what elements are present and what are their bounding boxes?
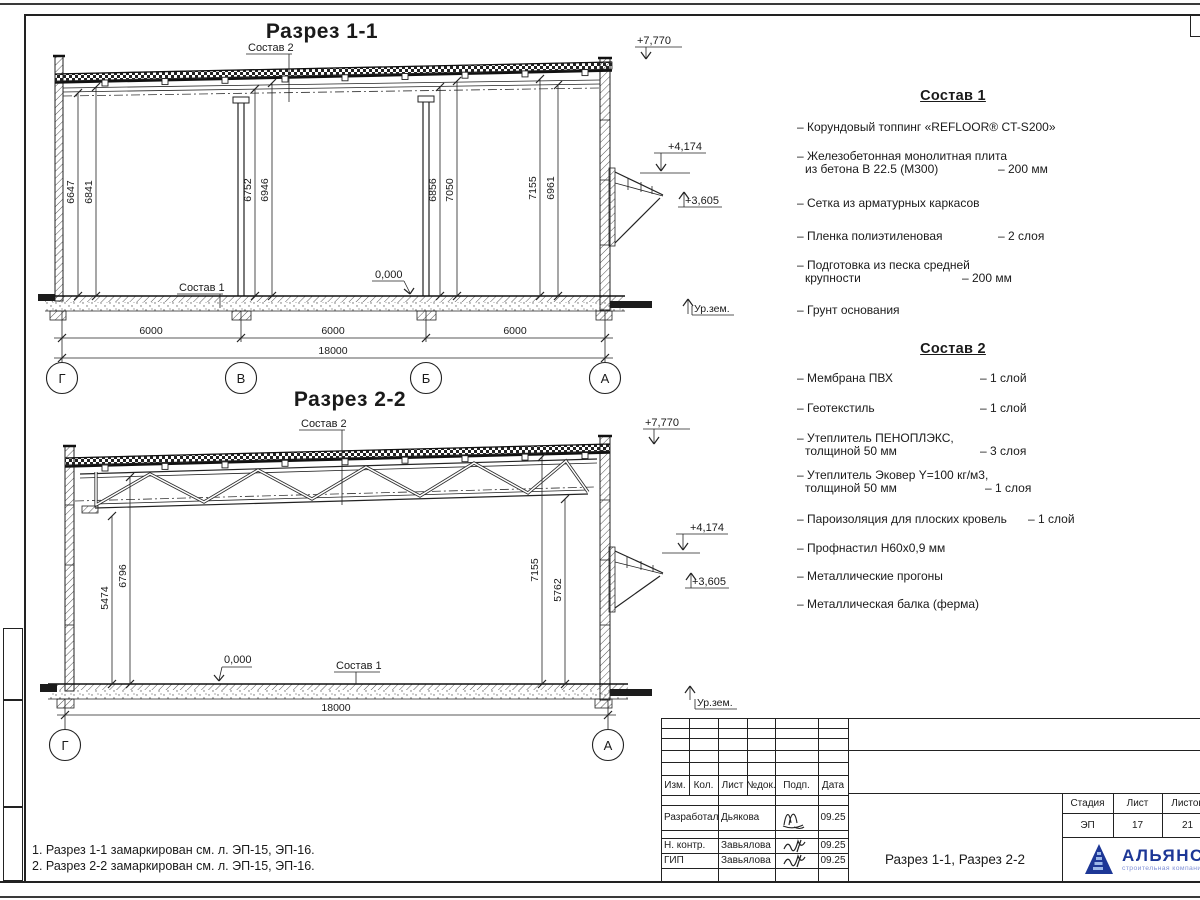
sostav1-item-value: – 2 слоя: [998, 229, 1044, 243]
tb-date-gip: 09.25: [818, 853, 848, 868]
total-dim: 18000: [318, 345, 347, 357]
tb-stage-value: ЭП: [1062, 813, 1113, 837]
elev-4174: +4,174: [668, 141, 702, 153]
sostav1-item: – Грунт основания: [797, 303, 900, 317]
dim-6856: 6856: [427, 178, 439, 202]
sostav2-item-value: – 1 слой: [980, 401, 1027, 415]
sostav2-item-value: – 3 слоя: [980, 444, 1026, 458]
ground-level-label: Ур.зем.: [697, 697, 733, 709]
section2-vertical-dims: 5474 6796 7155 5762: [99, 453, 569, 688]
title-block: Изм. Кол. Лист №док. Подп. Дата Разработ…: [661, 718, 1200, 882]
left-console: [40, 684, 57, 692]
dim-5474: 5474: [99, 586, 111, 610]
tb-name-gip: Завьялова: [718, 853, 775, 868]
section1-composition-leaders: Состав 2 Состав 1: [177, 42, 294, 308]
axis-v: В: [237, 371, 246, 386]
sostav1-heading: Состав 1: [795, 88, 1111, 104]
tb-sheet-label: Лист: [1113, 793, 1162, 813]
sostav1-ref-label: Состав 1: [336, 660, 382, 672]
section2-truss: [75, 459, 597, 513]
section2-bottom-dims: 18000 Г А: [50, 699, 624, 761]
section-1-1-drawing: Разрез 1-1: [35, 12, 735, 398]
tb-col-data: Дата: [818, 775, 848, 795]
elev-3605: +3,605: [692, 576, 726, 588]
tb-col-kol: Кол.: [689, 775, 718, 795]
section2-title: Разрез 2-2: [294, 388, 406, 411]
sheet-bottom-edge: [0, 896, 1200, 898]
tb-doc-title: Разрез 1-1, Разрез 2-2: [848, 838, 1062, 881]
left-stamp-box-2: [3, 700, 23, 807]
right-console: [610, 301, 652, 308]
tb-date-ncontrol: 09.25: [818, 838, 848, 853]
sostav2-item-value: – 1 слоя: [985, 481, 1031, 495]
dim-5762: 5762: [552, 578, 564, 602]
dim-6961: 6961: [545, 176, 557, 200]
elev-zero: 0,000: [224, 654, 252, 666]
span-dim-2: 6000: [321, 325, 345, 337]
sostav2-item: – Геотекстиль: [797, 401, 875, 415]
sostav2-heading: Состав 2: [795, 341, 1111, 357]
dim-6647: 6647: [65, 180, 77, 204]
section-2-2-drawing: Разрез 2-2: [30, 388, 740, 774]
sostav2-item: – Утеплитель ПЕНОПЛЭКС,: [797, 431, 954, 445]
sostav1-item: – Корундовый топпинг «REFLOOR® CT-S200»: [797, 120, 1056, 134]
tb-col-ndok: №док.: [747, 775, 775, 795]
tb-signature-gip: [775, 853, 818, 868]
sostav2-item: – Профнастил Н60х0,9 мм: [797, 541, 945, 555]
note-2: 2. Разрез 2-2 замаркирован см. л. ЭП-15,…: [32, 859, 315, 875]
span-dim-3: 6000: [503, 325, 527, 337]
elev-4174: +4,174: [690, 522, 724, 534]
composition-lists: Состав 1 – Корундовый топпинг «REFLOOR® …: [795, 0, 1200, 700]
axis-a: А: [601, 371, 610, 386]
sostav2-item: – Мембрана ПВХ: [797, 371, 893, 385]
tb-signature-ncontrol: [775, 838, 818, 853]
section1-floor: [38, 294, 652, 320]
tb-sheets-label: Листов: [1162, 793, 1200, 813]
section1-vertical-dims: 6647 6841 6752 6946 6856 7050 7155 6961: [65, 75, 562, 300]
tb-signature-developer: [775, 805, 818, 830]
sostav1-ref-label: Состав 1: [179, 282, 225, 294]
sostav2-item-cont: толщиной 50 мм: [805, 444, 897, 458]
sostav1-item-value: – 200 мм: [962, 271, 1012, 285]
tb-name-ncontrol: Завьялова: [718, 838, 775, 853]
tb-date-developer: 09.25: [818, 805, 848, 830]
left-stamp-box-3: [3, 807, 23, 881]
right-console: [610, 689, 652, 696]
tb-role-ncontrol: Н. контр.: [661, 838, 718, 853]
signature-icon: [781, 854, 813, 868]
tb-sheets-value: 21: [1162, 813, 1200, 837]
sostav2-item-value: – 1 слой: [980, 371, 1027, 385]
sostav1-item: – Подготовка из песка средней: [797, 258, 970, 272]
axis-a: А: [604, 738, 613, 753]
sostav2-item: – Металлические прогоны: [797, 569, 943, 583]
truss-support: [82, 506, 98, 513]
dim-6752: 6752: [242, 178, 254, 202]
dim-7155: 7155: [529, 558, 541, 582]
left-console: [38, 294, 55, 301]
section2-canopy: [609, 547, 663, 612]
tb-col-list: Лист: [718, 775, 747, 795]
sostav1-item: – Железобетонная монолитная плита: [797, 149, 1007, 163]
tb-stage-label: Стадия: [1062, 793, 1113, 813]
dim-6841: 6841: [83, 180, 95, 204]
sostav2-item: – Утеплитель Эковер Y=100 кг/м3,: [797, 468, 988, 482]
tb-col-podp: Подп.: [775, 775, 818, 795]
elev-7770: +7,770: [645, 417, 679, 429]
sostav1-item-cont: из бетона В 22.5 (М300): [805, 162, 938, 176]
tb-role-gip: ГИП: [661, 853, 718, 868]
section1-elevations: +7,770 +4,174 +3,605 0,000 Ур.зем.: [372, 35, 734, 315]
tb-logo-cell: АЛЬЯНС строительная компания: [1062, 837, 1200, 881]
drawing-sheet: { "notes": { "line1": "1. Разрез 1-1 зам…: [0, 0, 1200, 900]
note-1: 1. Разрез 1-1 замаркирован см. л. ЭП-15,…: [32, 843, 315, 859]
tb-col-izm: Изм.: [661, 775, 689, 795]
frame-left-border: [24, 14, 26, 882]
axis-g: Г: [58, 371, 65, 386]
tb-role-developer: Разработал: [661, 805, 718, 830]
sostav1-item-value: – 200 мм: [998, 162, 1048, 176]
tb-name-developer: Дьякова: [718, 805, 775, 830]
alliance-logo-icon: [1084, 843, 1114, 875]
dim-6796: 6796: [117, 564, 129, 588]
logo-text-group: АЛЬЯНС строительная компания: [1122, 846, 1200, 872]
section1-canopy: [609, 168, 663, 246]
left-stamp-box-1: [3, 628, 23, 700]
logo-name: АЛЬЯНС: [1122, 846, 1200, 866]
sostav2-item-cont: толщиной 50 мм: [805, 481, 897, 495]
sostav2-item: – Металлическая балка (ферма): [797, 597, 979, 611]
axis-g: Г: [61, 738, 68, 753]
elev-7770: +7,770: [637, 35, 671, 47]
sostav2-item-value: – 1 слой: [1028, 512, 1075, 526]
signature-icon: [780, 807, 814, 829]
elev-zero: 0,000: [375, 269, 403, 281]
elev-3605: +3,605: [685, 195, 719, 207]
axis-b: Б: [422, 371, 431, 386]
total-dim: 18000: [321, 702, 350, 714]
sostav2-item: – Пароизоляция для плоских кровель: [797, 512, 1007, 526]
ground-level-label: Ур.зем.: [694, 303, 730, 315]
dim-6946: 6946: [259, 178, 271, 202]
notes: 1. Разрез 1-1 замаркирован см. л. ЭП-15,…: [32, 843, 315, 874]
tb-sheet-value: 17: [1113, 813, 1162, 837]
sostav1-item-cont: крупности: [805, 271, 861, 285]
section1-title: Разрез 1-1: [266, 20, 378, 43]
sostav2-ref-label: Состав 2: [301, 418, 347, 430]
span-dim-1: 6000: [139, 325, 163, 337]
sostav2-ref-label: Состав 2: [248, 42, 294, 54]
dim-7050: 7050: [444, 178, 456, 202]
logo-subtitle: строительная компания: [1122, 865, 1200, 872]
sostav1-item: – Пленка полиэтиленовая: [797, 229, 943, 243]
section1-roof: [55, 62, 612, 96]
signature-icon: [781, 839, 813, 853]
sostav1-item: – Сетка из арматурных каркасов: [797, 196, 980, 210]
section1-bottom-dims: 6000 6000 6000 18000: [54, 311, 613, 362]
dim-7155: 7155: [527, 176, 539, 200]
